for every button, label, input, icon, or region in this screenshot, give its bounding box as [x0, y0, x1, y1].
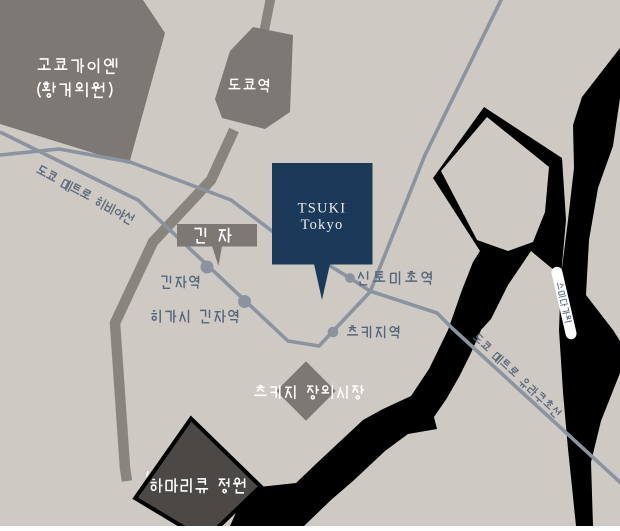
svg-text:TSUKI: TSUKI — [298, 200, 347, 216]
svg-text:Tokyo: Tokyo — [301, 217, 344, 233]
